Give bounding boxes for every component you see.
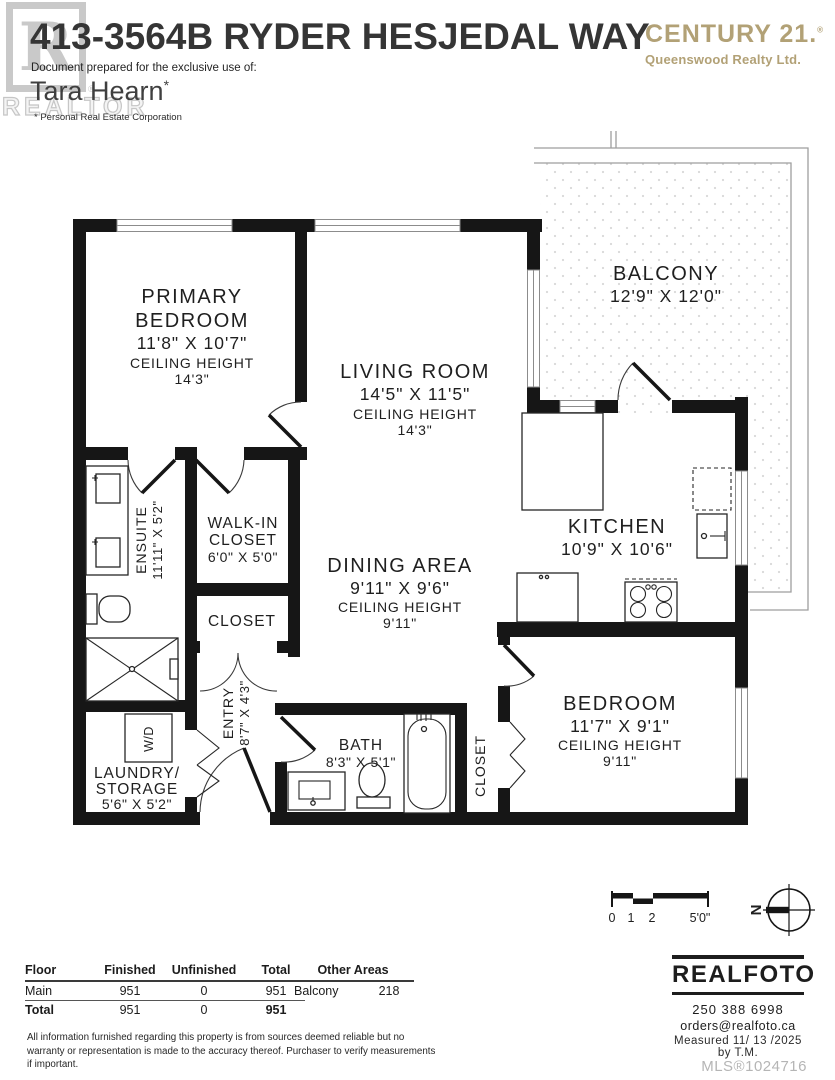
other-areas-table: Other Areas Balcony 218 (292, 962, 414, 998)
kitchen-sink (697, 514, 727, 558)
room-label-laundry: LAUNDRY/ STORAGE 5'6" X 5'2" (94, 765, 180, 812)
realfoto-email: orders@realfoto.ca (672, 1019, 804, 1033)
ceiling-value: 9'11" (383, 615, 417, 631)
mls-number: MLS®1024716 (701, 1058, 807, 1075)
agent-subtitle: * Personal Real Estate Corporation (34, 112, 182, 123)
col-header-unfinished: Unfinished (161, 962, 247, 982)
room-name: DINING AREA (327, 555, 472, 577)
room-dims: 8'3" X 5'1" (326, 754, 396, 770)
room-label-ensuite: ENSUITE 11'11" X 5'2" (133, 500, 165, 579)
room-name: BEDROOM (135, 310, 249, 332)
room-label-dining-area: DINING AREA 9'11" X 9'6" CEILING HEIGHT … (327, 555, 472, 631)
agent-asterisk: * (164, 77, 169, 93)
ceiling-label: CEILING HEIGHT (558, 737, 682, 753)
ceiling-label: CEILING HEIGHT (130, 355, 254, 371)
col-header-floor: Floor (25, 962, 99, 982)
room-dims: 6'0" X 5'0" (208, 549, 278, 565)
logo-bar-bottom (672, 992, 804, 996)
floor-plan: PRIMARY BEDROOM 11'8" X 10'7" CEILING HE… (0, 0, 835, 1080)
page-title: 413-3564B RYDER HESJEDAL WAY (30, 16, 650, 58)
kitchen-island-sink (517, 573, 578, 622)
room-dims: 11'11" X 5'2" (150, 500, 165, 579)
cell-balcony-name: Balcony (292, 984, 364, 998)
cell-total-finished: 951 (99, 1001, 161, 1019)
room-name: KITCHEN (568, 516, 666, 538)
window (117, 220, 232, 232)
kitchen-peninsula-counter (522, 413, 603, 510)
room-dims: 8'7" X 4'3" (237, 680, 252, 746)
door-walk-in-closet (196, 460, 244, 493)
room-dims: 5'6" X 5'2" (102, 796, 172, 812)
scale-tick: 2 (649, 911, 656, 925)
agent-name-text: Tara Hearn (30, 76, 164, 106)
room-dims: 14'5" X 11'5" (360, 384, 471, 404)
realfoto-phone: 250 388 6998 (672, 1002, 804, 1017)
window (736, 471, 748, 565)
ceiling-value: 9'11" (603, 753, 637, 769)
scale-tick: 5'0" (690, 911, 711, 925)
cell-main-finished: 951 (99, 982, 161, 1001)
room-name: CLOSET (209, 532, 277, 549)
window (736, 688, 748, 778)
floorplan-page: { "header": { "title": "413-3564B RYDER … (0, 0, 835, 1080)
window (315, 220, 460, 232)
ceiling-label: CEILING HEIGHT (338, 599, 462, 615)
bathtub (404, 713, 450, 813)
room-name: LAUNDRY/ (94, 765, 180, 782)
room-dims: 9'11" X 9'6" (350, 578, 450, 598)
other-areas-header: Other Areas (292, 962, 414, 982)
room-name: BALCONY (613, 263, 719, 285)
ensuite-toilet (86, 594, 130, 624)
cell-main-floor: Main (25, 982, 99, 1001)
door-ensuite (128, 460, 175, 493)
scale-tick: 1 (628, 911, 635, 925)
fridge (693, 468, 731, 510)
room-name: PRIMARY (141, 286, 242, 308)
measured-line: Measured 11/ 13 /2025 by T.M. (672, 1035, 804, 1059)
century21-wordmark: CENTURY 21. (645, 20, 817, 48)
door-bedroom-closet-bifold (510, 722, 525, 788)
scale-tick: 0 (609, 911, 616, 925)
cell-total-unfinished: 0 (161, 1001, 247, 1019)
area-table: Floor Finished Unfinished Total Main 951… (25, 962, 305, 1019)
room-name: LIVING ROOM (340, 361, 490, 383)
door-primary-bedroom (269, 402, 301, 447)
window (560, 401, 595, 413)
room-label-bedroom-closet: CLOSET (472, 735, 488, 797)
cell-main-unfinished: 0 (161, 982, 247, 1001)
room-name: BEDROOM (563, 693, 677, 715)
door-laundry-bifold (197, 730, 219, 797)
ceiling-label: CEILING HEIGHT (353, 406, 477, 422)
room-label-primary-bedroom: PRIMARY BEDROOM 11'8" X 10'7" CEILING HE… (130, 286, 254, 387)
room-label-kitchen: KITCHEN 10'9" X 10'6" (561, 516, 673, 559)
disclaimer-line: warranty or representation is made to th… (27, 1045, 435, 1059)
ceiling-value: 14'3" (174, 371, 209, 387)
door-entry (200, 748, 270, 812)
stove (625, 579, 677, 622)
brokerage-name: Queenswood Realty Ltd. (645, 52, 824, 67)
room-name: WALK-IN (207, 515, 278, 532)
scale-bar: 0 1 2 5'0" (609, 891, 711, 925)
col-header-finished: Finished (99, 962, 161, 982)
room-label-entry: ENTRY 8'7" X 4'3" (220, 680, 252, 746)
room-label-living-room: LIVING ROOM 14'5" X 11'5" CEILING HEIGHT… (340, 361, 490, 438)
window (528, 270, 540, 387)
cell-total-total: 951 (247, 1001, 305, 1019)
ensuite-vanity (86, 466, 128, 575)
room-dims: 12'9" X 12'0" (610, 286, 722, 306)
ceiling-value: 14'3" (397, 422, 432, 438)
room-label-balcony: BALCONY 12'9" X 12'0" (610, 263, 722, 306)
north-arrow: N (748, 884, 815, 936)
cell-balcony-value: 218 (364, 984, 414, 998)
room-dims: 11'7" X 9'1" (570, 716, 670, 736)
room-dims: 10'9" X 10'6" (561, 539, 673, 559)
cell-total-floor: Total (25, 1001, 99, 1019)
washer-dryer-label: W/D (142, 726, 156, 752)
room-name: ENSUITE (133, 506, 149, 574)
disclaimer: All information furnished regarding this… (27, 1031, 435, 1072)
century21-registered-mark: ® (817, 26, 824, 35)
disclaimer-line: if important. (27, 1058, 435, 1072)
room-label-bedroom: BEDROOM 11'7" X 9'1" CEILING HEIGHT 9'11… (558, 693, 682, 769)
realfoto-logo: REALFOTO (672, 959, 804, 992)
shower (86, 638, 178, 701)
room-label-walk-in-closet: WALK-IN CLOSET 6'0" X 5'0" (207, 515, 278, 565)
century21-logo: CENTURY 21.® Queenswood Realty Ltd. (645, 20, 824, 67)
door-bedroom (504, 645, 534, 686)
realfoto-block: REALFOTO 250 388 6998 orders@realfoto.ca… (672, 955, 804, 1059)
room-dims: 11'8" X 10'7" (137, 333, 248, 353)
bath-vanity (288, 772, 345, 810)
north-label: N (748, 905, 765, 916)
door-bath (281, 717, 315, 762)
room-label-bath: BATH 8'3" X 5'1" (326, 737, 396, 770)
room-name: ENTRY (220, 687, 236, 739)
agent-name: Tara Hearn* (30, 76, 169, 107)
room-label-hall-closet: CLOSET (208, 613, 276, 630)
prepared-for-label: Document prepared for the exclusive use … (31, 62, 257, 74)
disclaimer-line: All information furnished regarding this… (27, 1031, 435, 1045)
room-name: BATH (339, 737, 383, 754)
